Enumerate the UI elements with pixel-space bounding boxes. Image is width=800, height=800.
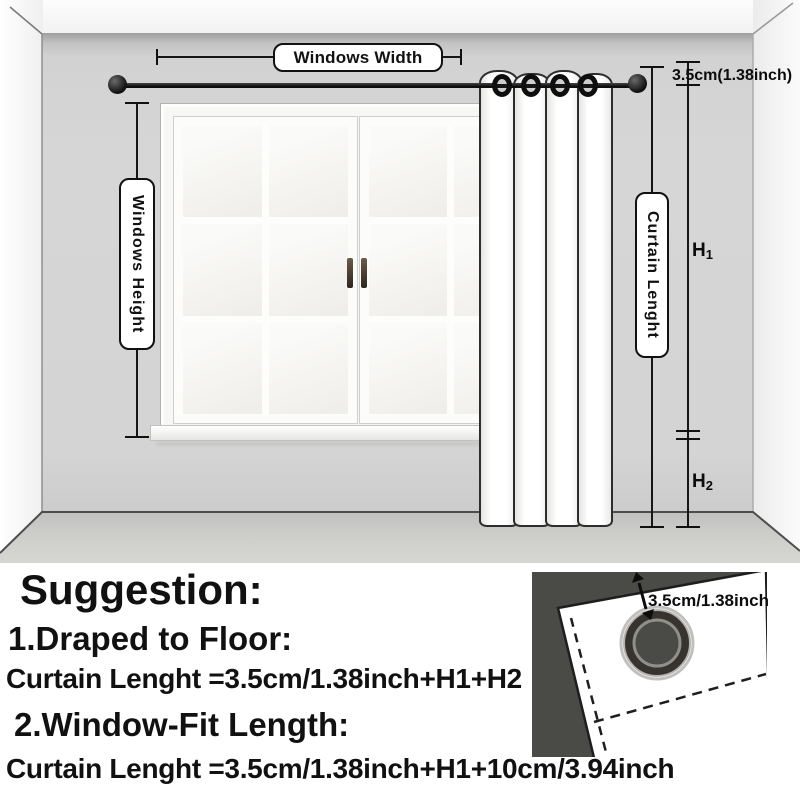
- rod-finial-left: [108, 75, 127, 94]
- windows-height-label: Windows Height: [119, 178, 155, 350]
- h1-letter: H: [692, 240, 706, 261]
- grommet-ring: [550, 74, 570, 97]
- h-measure-tick-divider-a: [676, 430, 700, 432]
- curtain-length-tick-bottom: [640, 526, 664, 528]
- width-measure-line-left: [157, 56, 273, 58]
- h1-subscript: 1: [706, 247, 713, 262]
- window-pane: [183, 323, 262, 414]
- window-pane: [369, 224, 448, 315]
- height-measure-line-bottom: [136, 349, 138, 437]
- h-measure-tick-top: [676, 61, 700, 63]
- left-wall: [0, 0, 43, 563]
- curtain-length-line-bottom: [651, 357, 653, 527]
- suggestion-item1-title: 1.Draped to Floor:: [8, 620, 292, 658]
- rod-finial-right: [628, 74, 647, 93]
- h2-subscript: 2: [706, 478, 713, 493]
- h-measure-line: [687, 62, 689, 528]
- offset-arrow-head-top: [632, 572, 644, 583]
- curtain-fold: [577, 73, 613, 527]
- window-pane: [269, 126, 348, 217]
- window-sash-left: [174, 117, 357, 423]
- window-pane: [269, 224, 348, 315]
- grommet-ring: [521, 74, 541, 97]
- grommet-offset-label: 3.5cm/1.38inch: [648, 591, 769, 611]
- curtain-measurement-infographic: Windows Width Windows Height Curtain Len…: [0, 0, 800, 800]
- floor: [0, 505, 800, 563]
- suggestion-item2-formula: Curtain Lenght =3.5cm/1.38inch+H1+10cm/3…: [6, 753, 674, 785]
- grommet-ring-hole: [634, 620, 680, 666]
- windows-height-text: Windows Height: [128, 195, 146, 333]
- curtain-length-label: Curtain Lenght: [635, 192, 669, 358]
- curtain-length-line-top: [651, 67, 653, 193]
- window-pane: [183, 126, 262, 217]
- grommet-ring: [578, 74, 598, 97]
- h-measure-tick-bottom: [676, 526, 700, 528]
- rod-offset-label: 3.5cm(1.38inch): [672, 67, 792, 85]
- h2-label: H2: [692, 471, 713, 493]
- window-pane: [269, 323, 348, 414]
- suggestion-item1-formula: Curtain Lenght =3.5cm/1.38inch+H1+H2: [6, 663, 522, 695]
- windows-width-text: Windows Width: [294, 48, 423, 68]
- width-measure-tick-right: [460, 49, 462, 65]
- ceiling: [0, 0, 800, 34]
- room-scene: Windows Width Windows Height Curtain Len…: [0, 0, 800, 563]
- width-measure-line-right: [441, 56, 461, 58]
- h1-label: H1: [692, 240, 713, 262]
- grommet-ring: [492, 74, 512, 97]
- height-measure-tick-bottom: [125, 436, 149, 438]
- window-handle-right: [361, 258, 367, 288]
- h-measure-tick-divider-b: [676, 438, 700, 440]
- window-pane: [369, 126, 448, 217]
- h2-letter: H: [692, 471, 706, 492]
- windows-width-label: Windows Width: [273, 43, 443, 72]
- curtain-length-text: Curtain Lenght: [643, 211, 661, 339]
- window-pane: [369, 323, 448, 414]
- suggestion-item2-title: 2.Window-Fit Length:: [14, 706, 349, 744]
- window-pane: [183, 224, 262, 315]
- suggestion-title: Suggestion:: [20, 566, 263, 614]
- window-handle-left: [347, 258, 353, 288]
- height-measure-line-top: [136, 103, 138, 179]
